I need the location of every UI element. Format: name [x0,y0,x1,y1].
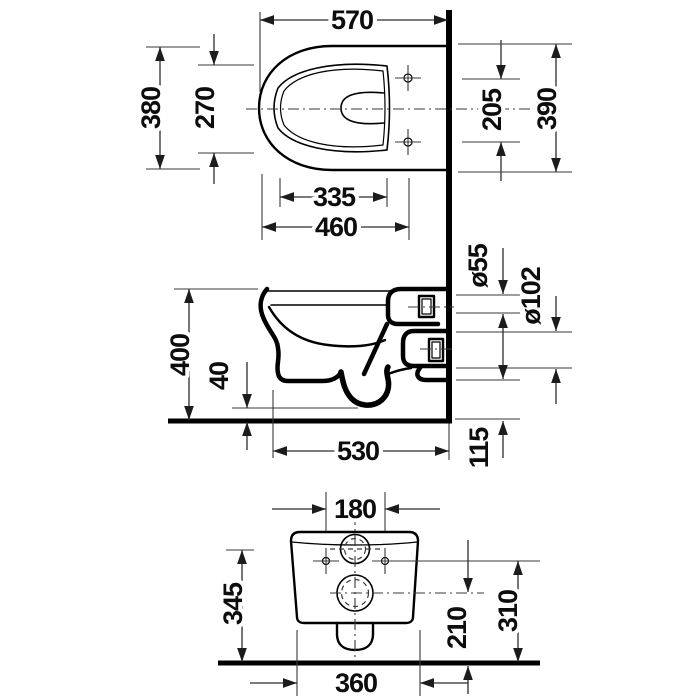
dim-390-label: 390 [532,88,562,130]
dim-270-label: 270 [190,87,220,129]
rear-view: 180 345 210 310 360 [218,492,540,698]
dim-40-label: 40 [204,362,234,390]
dim-530-label: 530 [337,436,379,466]
dim-400-label: 400 [165,334,195,376]
plan-bowl-opening-outer [274,64,390,151]
dim-310: 310 [493,561,523,662]
dim-205: 205 [462,40,520,181]
dim-115: 115 [456,314,520,468]
plan-bowl-opening-inner [281,69,386,147]
dim-570-label: 570 [331,5,373,35]
side-front-profile [261,289,341,381]
side-bowl-interior [269,307,385,346]
technical-drawing: 570 380 270 205 39 [0,0,700,700]
dim-345-label: 345 [218,582,248,625]
dim-310-label: 310 [493,590,523,632]
dim-270: 270 [190,34,254,184]
side-floor-line [168,419,520,421]
side-flush-box [388,289,454,324]
rear-drain-hole [330,575,484,611]
plan-view: 570 380 270 205 39 [136,5,572,242]
plan-fixing-hole-bottom [395,129,421,155]
dim-380-label: 380 [136,87,166,129]
rear-fixing-hole-right [372,548,540,574]
plan-fixing-hole-top [395,65,421,91]
dim-210: 210 [442,540,472,694]
dim-dia55: ø55 [456,243,520,313]
dim-460-label: 460 [315,212,357,242]
side-bowl-back-slope [364,324,387,374]
dim-390: 390 [458,44,572,172]
dim-115-label: 115 [464,427,494,469]
dim-dia102-label: ø102 [516,267,546,325]
plan-flush-channel [341,92,384,123]
dim-210-label: 210 [442,607,472,649]
dim-180: 180 [272,492,440,531]
dim-400: 400 [165,289,258,420]
drawing-canvas: 570 380 270 205 39 [0,0,700,700]
side-view: 400 40 ø55 ø102 115 [165,243,572,468]
dim-180-label: 180 [334,494,376,524]
dim-dia55-label: ø55 [463,243,493,288]
dim-345: 345 [218,550,254,662]
rear-fixing-hole-left [313,548,339,574]
dim-205-label: 205 [477,88,507,131]
dim-335-label: 335 [313,182,356,212]
dim-335: 335 [280,178,387,212]
side-trap-to-outlet [388,368,411,374]
dim-360-label: 360 [335,668,377,698]
